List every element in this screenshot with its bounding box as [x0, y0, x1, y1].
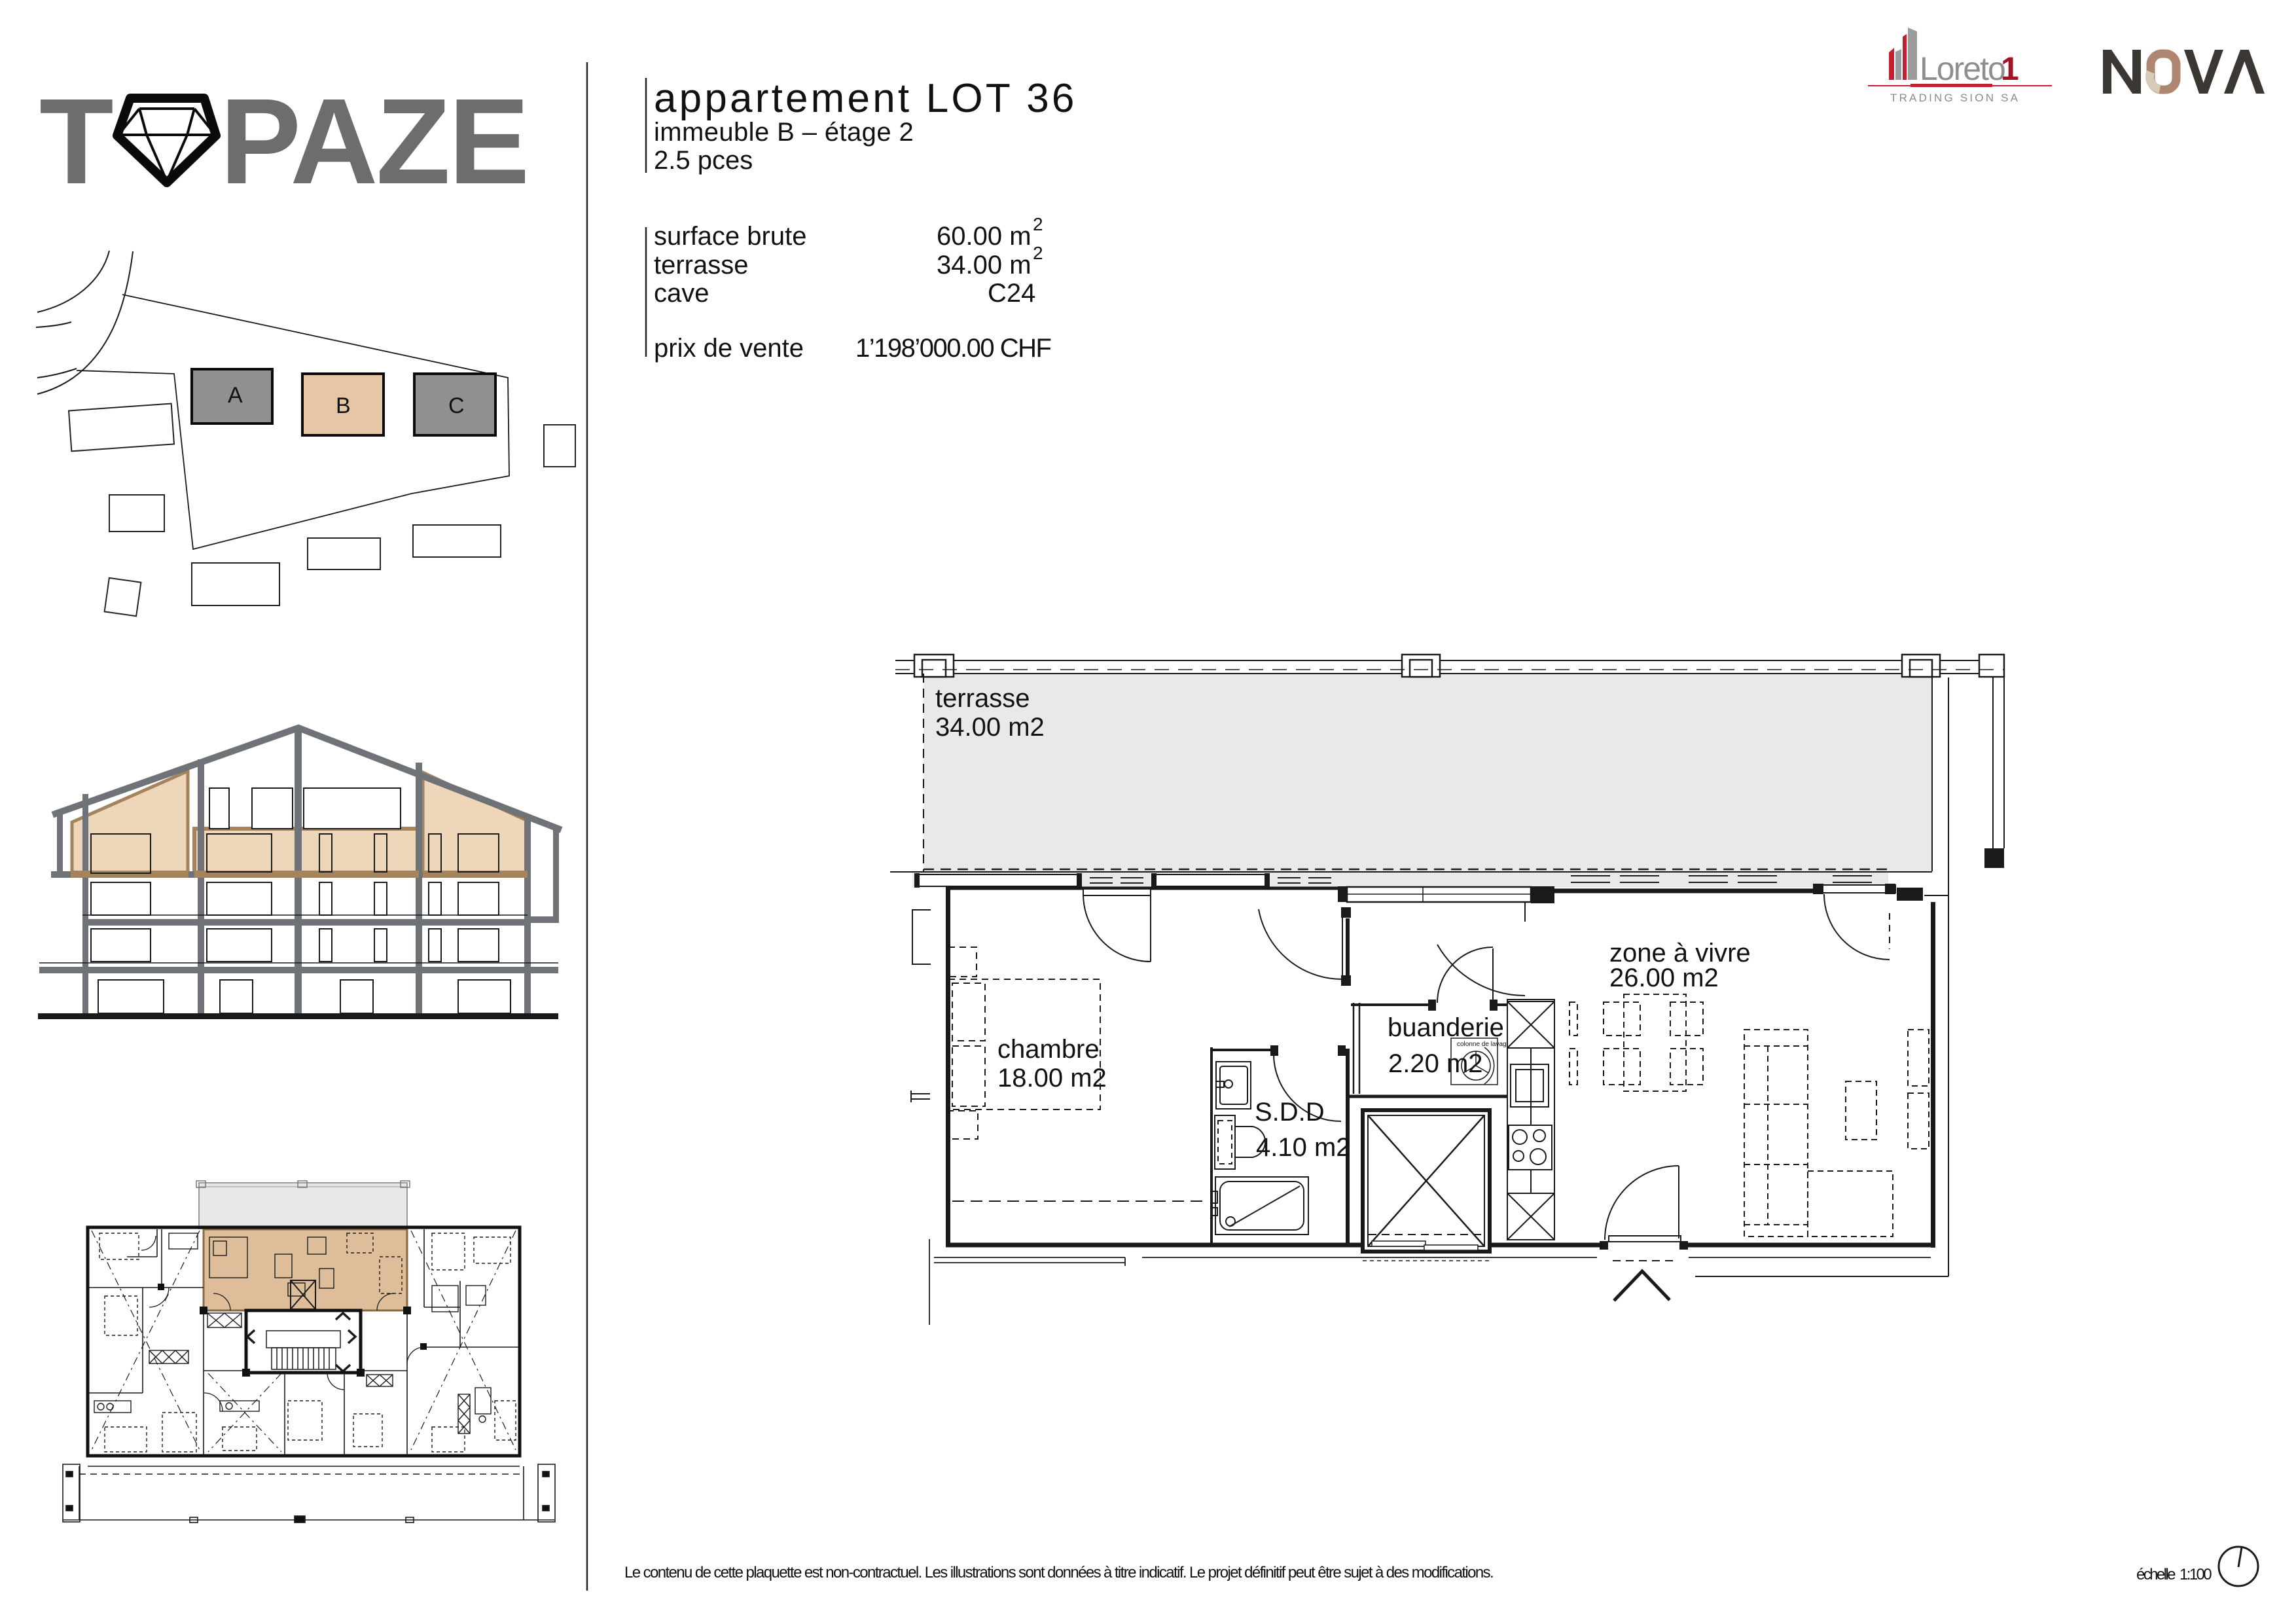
svg-text:terrasse: terrasse [654, 251, 749, 280]
svg-text:B: B [336, 393, 351, 418]
svg-text:S.D.D: S.D.D [1255, 1098, 1325, 1127]
svg-text:18.00 m2: 18.00 m2 [997, 1064, 1107, 1092]
svg-text:34.00 m: 34.00 m [937, 251, 1031, 280]
svg-text:1: 1 [2001, 50, 2019, 87]
svg-text:cave: cave [654, 279, 709, 308]
svg-text:surface brute: surface brute [654, 222, 806, 251]
svg-text:2.5 pces: 2.5 pces [654, 146, 753, 175]
svg-text:appartement LOT 36: appartement LOT 36 [654, 76, 1077, 121]
svg-text:A: A [228, 383, 243, 408]
svg-text:4.10 m2: 4.10 m2 [1256, 1133, 1351, 1162]
svg-text:immeuble B – étage 2: immeuble B – étage 2 [654, 118, 914, 147]
svg-text:2: 2 [1033, 214, 1043, 234]
svg-text:Le contenu de cette plaquette: Le contenu de cette plaquette est non-co… [624, 1564, 1493, 1581]
svg-text:T: T [39, 74, 114, 209]
svg-text:terrasse: terrasse [935, 684, 1030, 713]
svg-text:PAZE: PAZE [220, 74, 528, 209]
svg-text:26.00 m2: 26.00 m2 [1609, 964, 1719, 992]
svg-text:1’198’000.00 CHF: 1’198’000.00 CHF [855, 334, 1050, 363]
svg-text:Loreto: Loreto [1920, 50, 2005, 87]
svg-text:C: C [448, 393, 465, 418]
svg-text:échelle 1:100: échelle 1:100 [2136, 1566, 2212, 1583]
svg-text:TRADING SION SA: TRADING SION SA [1890, 92, 2020, 104]
svg-text:prix de vente: prix de vente [654, 334, 804, 363]
svg-text:colonne de lavage: colonne de lavage [1457, 1041, 1511, 1048]
svg-text:34.00 m2: 34.00 m2 [935, 713, 1045, 742]
svg-text:chambre: chambre [997, 1035, 1100, 1064]
svg-text:60.00 m: 60.00 m [937, 222, 1031, 251]
svg-text:C24: C24 [988, 279, 1035, 308]
svg-text:2: 2 [1033, 243, 1043, 263]
